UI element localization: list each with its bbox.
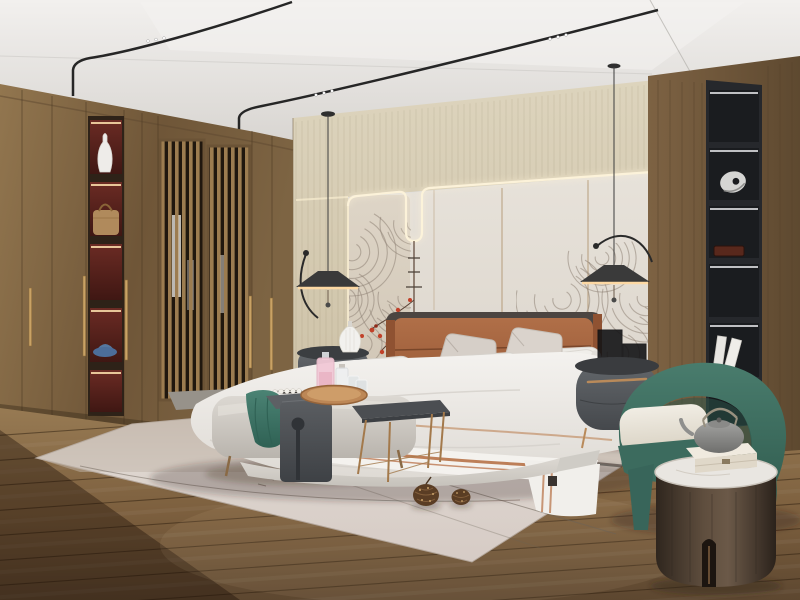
scene-canvas (0, 0, 800, 600)
pendant-right-bulb (612, 298, 617, 303)
pendant-left-ball (303, 250, 309, 256)
c-table-slot (296, 428, 300, 480)
wardrobe-display-niches (88, 116, 124, 416)
perfume-bottle (317, 352, 334, 390)
lattice-slats-right (208, 146, 250, 404)
pinecone-small (452, 489, 471, 505)
bedroom-scene (0, 0, 800, 600)
pendant-right-ball (593, 243, 599, 249)
c-table-leg-panel (280, 402, 332, 482)
bed-foot-leg (548, 476, 557, 486)
pendant-left-bulb (326, 303, 331, 308)
teapot-knob (717, 418, 722, 423)
red-box (714, 246, 744, 256)
wood-tray-inner (307, 387, 361, 401)
lattice-slats-left (160, 140, 204, 400)
lattice-doors (160, 140, 250, 404)
nightstand-right-top (575, 357, 659, 375)
